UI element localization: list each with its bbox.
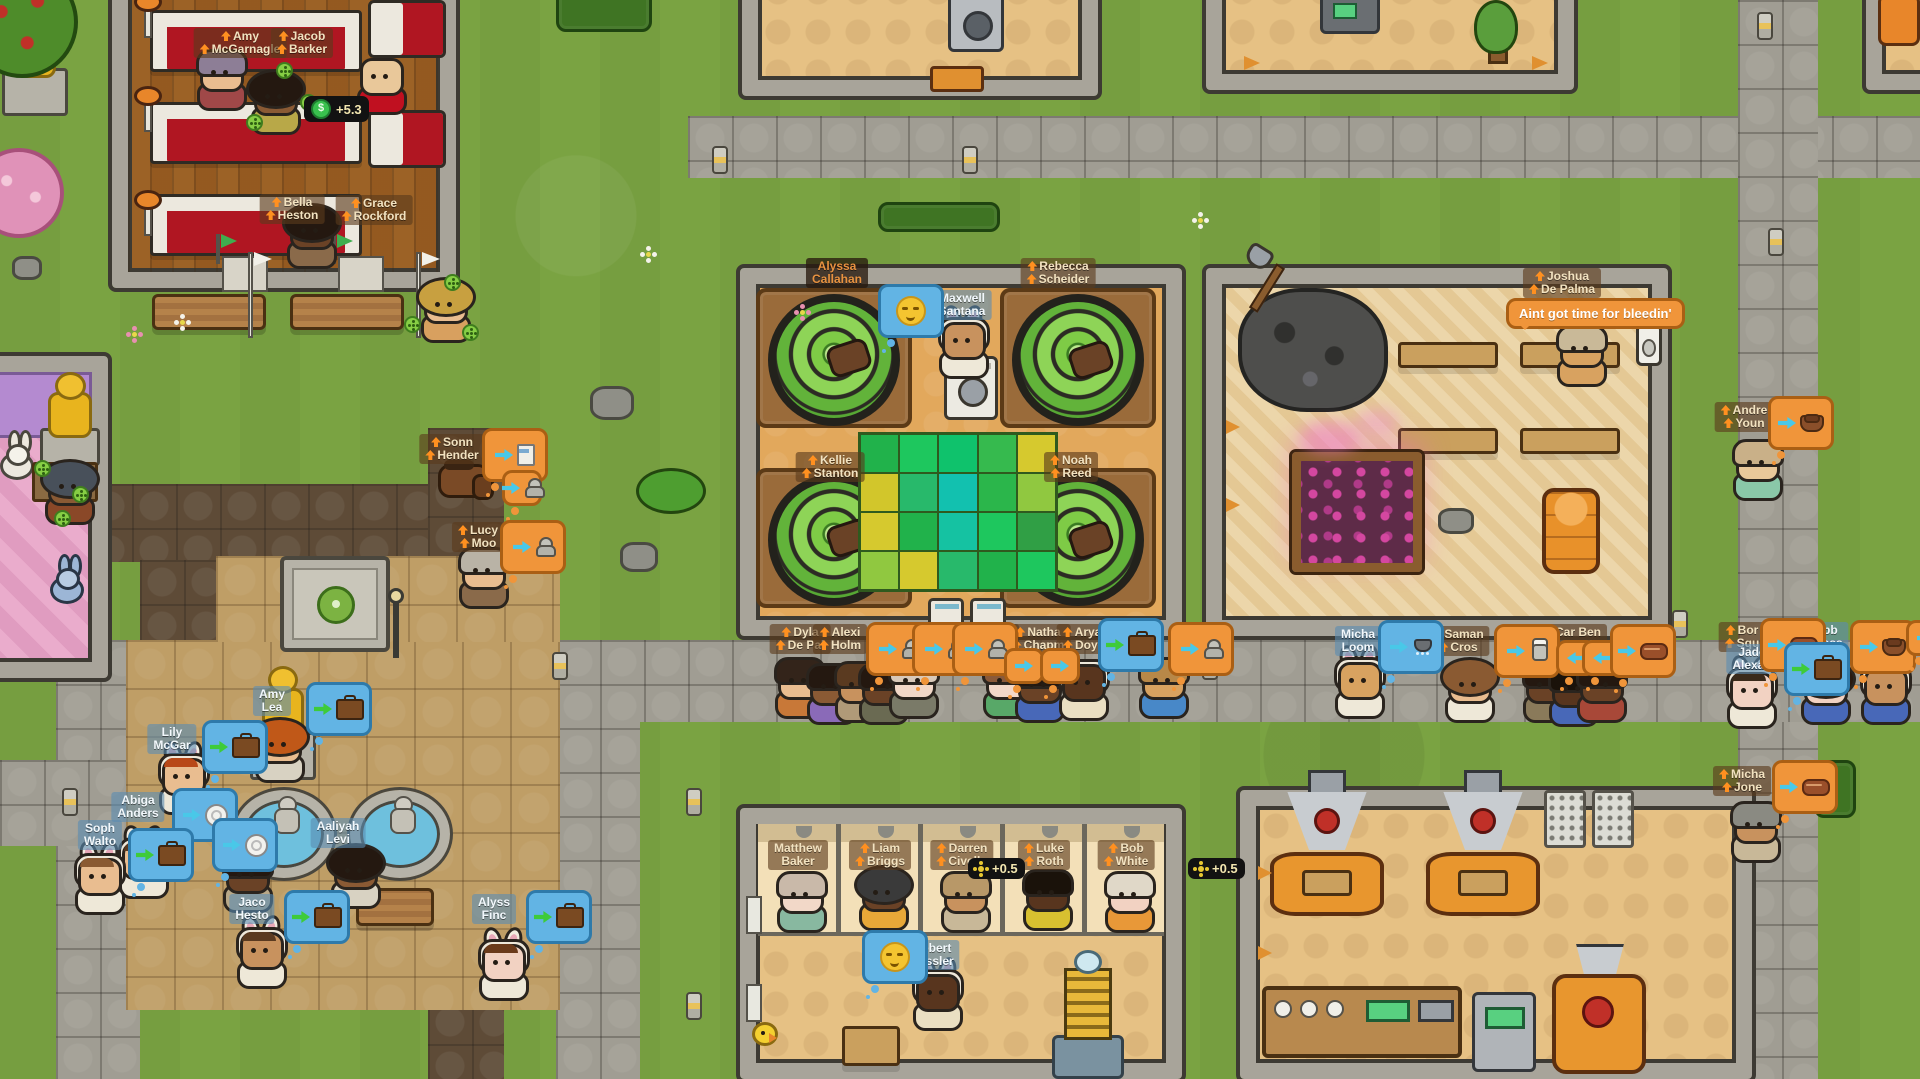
character-npc[interactable]: [420, 286, 466, 340]
up-arrow-icon: [1108, 843, 1118, 853]
character-eyes: [997, 678, 1002, 683]
plate-icon: [245, 834, 268, 857]
character-bob-white[interactable]: [1104, 876, 1150, 930]
bubble-tail: [221, 873, 229, 881]
name-banner-micha-loom: MichaLoom: [1335, 626, 1381, 656]
bubble-tail: [1519, 324, 1531, 336]
bubble-tail: [1781, 815, 1789, 823]
up-arrow-icon: [1050, 468, 1060, 478]
path-top-horizontal: [688, 116, 1920, 178]
up-arrow-icon: [1050, 455, 1060, 465]
assembly-counter[interactable]: [1262, 986, 1462, 1058]
character-eyes: [1741, 688, 1746, 693]
hedge: [556, 0, 652, 32]
up-arrow-icon: [1529, 284, 1539, 294]
bubble-tail: [1591, 677, 1599, 685]
pinwheel-icon: [978, 866, 984, 872]
up-arrow-icon: [1719, 769, 1729, 779]
tulip-lamp: [134, 0, 162, 38]
arrow-icon: [925, 643, 943, 655]
arrow-icon: [965, 643, 983, 655]
case-icon: [232, 737, 260, 758]
character-eyes: [59, 484, 64, 489]
bubble-tail: [211, 775, 219, 783]
white-flag-icon: [422, 252, 440, 266]
name-banner-liam-briggs: LiamBriggs: [849, 840, 911, 870]
dorm-bed[interactable]: [368, 0, 446, 58]
arrow-icon: [1593, 652, 1611, 664]
character-jade-alexan[interactable]: [1726, 672, 1772, 726]
arrow-icon: [1106, 639, 1124, 651]
meat-icon: [1802, 779, 1830, 796]
character-maxwell-santana[interactable]: [938, 322, 984, 376]
character-head: [360, 58, 404, 96]
thought-bubble-lucy-moo: [500, 520, 566, 574]
character-eyes: [953, 338, 958, 343]
thought-bubble-lily-mcgar: [202, 720, 268, 774]
thought-bubble-arya-doyl: [1040, 648, 1080, 684]
up-arrow-icon: [458, 525, 468, 535]
character-hair: [1440, 657, 1500, 697]
shower-icon: [1412, 637, 1432, 657]
up-arrow-icon: [1726, 625, 1736, 635]
character-hair: [854, 865, 914, 905]
arrow-icon: [1051, 660, 1069, 672]
badge-value: +5.3: [336, 102, 362, 117]
name-banner-joshua-de-palma: JoshuaDe Palma: [1523, 268, 1601, 298]
clover-sparkle-icon: [72, 486, 89, 503]
bubble-tail: [961, 677, 969, 685]
flower-pink-icon: [128, 328, 140, 340]
character-eyes: [903, 678, 908, 683]
character-eyes: [1037, 890, 1042, 895]
bubble-tail: [921, 677, 929, 685]
name-banner-amy-lea: AmyLea: [253, 686, 291, 716]
arrow-icon: [513, 541, 531, 553]
bubble-tail: [1793, 697, 1801, 705]
pink-mist: [1355, 408, 1399, 436]
character-eyes: [89, 874, 94, 879]
orange-flag-icon: [1226, 420, 1240, 434]
up-arrow-icon: [1721, 405, 1731, 415]
up-arrow-icon: [1104, 856, 1114, 866]
up-arrow-icon: [460, 538, 470, 548]
bubble-tail: [1503, 679, 1511, 687]
path-center-vertical: [556, 640, 640, 1079]
arrow-icon: [183, 809, 201, 821]
bubble-tail: [875, 677, 883, 685]
white-bunny-pet[interactable]: [0, 428, 34, 480]
character-lucy-moo[interactable]: [458, 552, 504, 606]
flagpole: [248, 252, 253, 338]
hair-fringe: [242, 932, 276, 941]
arrow-icon: [1507, 645, 1525, 657]
character-eyes: [849, 682, 854, 687]
laundry-drum[interactable]: [1012, 294, 1144, 426]
hopper-machine[interactable]: [1424, 770, 1542, 920]
character-jaco-hesto[interactable]: [236, 932, 282, 986]
path-middle-horizontal: [556, 640, 1920, 722]
bubble-tail: [1619, 679, 1627, 687]
name-banner-soph-walto: SophWalto: [78, 820, 122, 850]
character-eyes: [371, 74, 376, 79]
chick-pet[interactable]: [752, 1022, 778, 1046]
flower-white-icon: [176, 316, 188, 328]
green-flag-icon: [337, 234, 353, 248]
coin-icon: $: [311, 99, 331, 119]
up-arrow-icon: [200, 44, 210, 54]
up-arrow-icon: [1027, 261, 1037, 271]
character-joshua-de-palma[interactable]: [1556, 330, 1602, 384]
work-table[interactable]: [1520, 428, 1620, 454]
character-soph-walto[interactable]: [74, 858, 120, 912]
bubble-tail: [1777, 451, 1785, 459]
orange-flag-icon: [1258, 946, 1272, 960]
arrow-icon: [210, 741, 228, 753]
name-banner-noah-reed: NoahReed: [1044, 452, 1098, 482]
character-matthew-baker[interactable]: [776, 876, 822, 930]
thought-bubble-jade-alexan: [1784, 642, 1850, 696]
path-dirt-connector: [140, 560, 216, 642]
clover-sparkle-icon: [54, 510, 71, 527]
character-hair: [1022, 869, 1074, 897]
bubble-tail: [509, 575, 517, 583]
name-banner-bob-white: BobWhite: [1098, 840, 1155, 870]
arrow-icon: [879, 643, 897, 655]
thought-bubble-maxwell-santana: [878, 284, 944, 338]
thought-bubble-npc: [502, 470, 542, 506]
thought-bubble-alyss-finc: [526, 890, 592, 944]
clover-sparkle-icon: [444, 274, 461, 291]
thought-bubble-robert-kessler: [862, 930, 928, 984]
thought-bubble-emil-bibb: [1906, 620, 1920, 656]
mat-tile: [861, 474, 898, 511]
tesla-machine[interactable]: [1046, 958, 1130, 1079]
name-banner-matthew-baker: MatthewBaker: [768, 840, 828, 870]
spin-badge: +0.5: [1188, 858, 1245, 879]
name-banner-grace-rockford: GraceRockford: [336, 195, 413, 225]
side-table[interactable]: [842, 1026, 900, 1066]
mat-tile: [939, 513, 976, 550]
up-arrow-icon: [820, 627, 830, 637]
money-badge: $+5.3: [304, 96, 369, 122]
character-hair: [246, 69, 306, 109]
up-arrow-icon: [802, 468, 812, 478]
thought-bubble-npc: [1168, 622, 1234, 676]
up-arrow-icon: [431, 437, 441, 447]
clover-sparkle-icon: [246, 114, 263, 131]
character-head: [1338, 662, 1382, 700]
thought-bubble-amy-lea: [306, 682, 372, 736]
person-icon: [1203, 639, 1221, 659]
thought-bubble-npc: [1494, 624, 1560, 678]
character-hair: [1104, 871, 1156, 899]
up-arrow-icon: [266, 210, 276, 220]
hopper-machine[interactable]: [1268, 770, 1386, 920]
character-eyes: [251, 948, 256, 953]
bubble-tail: [1565, 677, 1573, 685]
character-hair: [326, 843, 386, 883]
up-arrow-icon: [425, 450, 435, 460]
blossom-tree: [0, 148, 64, 238]
up-arrow-icon: [277, 44, 287, 54]
bubble-tail: [1915, 657, 1920, 665]
rock: [590, 386, 634, 420]
character-emil-bibb[interactable]: [1860, 668, 1906, 722]
arrow-icon: [1390, 641, 1408, 653]
bubble-tail: [871, 985, 879, 993]
character-eyes: [1537, 682, 1542, 687]
clover-sparkle-icon: [462, 324, 479, 341]
character-liam-briggs[interactable]: [858, 874, 904, 928]
up-arrow-icon: [272, 197, 282, 207]
arrow-icon: [1780, 781, 1798, 793]
clover-sparkle-icon: [34, 460, 51, 477]
name-banner-luke-roth: LukeRoth: [1018, 840, 1070, 870]
arrow-icon: [502, 482, 520, 494]
up-arrow-icon: [351, 198, 361, 208]
speech-bubble-joshua-de-palma: Aint got time for bleedin': [1506, 298, 1685, 329]
name-banner-sonn-hender: SonnHender: [419, 434, 484, 464]
pinwheel-icon: [1198, 866, 1204, 872]
character-eyes: [493, 960, 498, 965]
path-bollard: [962, 146, 978, 174]
shelf-crate[interactable]: [930, 66, 984, 92]
name-banner-alexi-holm: AlexiHolm: [813, 624, 867, 654]
bubble-tail: [1177, 677, 1185, 685]
bubble-tail: [1107, 673, 1115, 681]
wall-poster: [746, 984, 762, 1022]
arrow-icon: [1778, 417, 1796, 429]
tulip-lamp: [134, 190, 162, 236]
character-luke-roth[interactable]: [1022, 874, 1068, 928]
character-eyes: [1875, 684, 1880, 689]
name-banner-rebecca-scheider: RebeccaScheider: [1021, 258, 1096, 288]
name-banner-bella-heston: BellaHeston: [260, 194, 325, 224]
bubble-tail: [1049, 685, 1057, 693]
orange-flag-icon: [1244, 56, 1260, 70]
bubble-tail: [535, 945, 543, 953]
up-arrow-icon: [808, 455, 818, 465]
smelter-machine[interactable]: [1548, 944, 1652, 1078]
mat-tile: [939, 552, 976, 589]
mat-tile: [861, 513, 898, 550]
arrow-icon: [223, 839, 241, 851]
dorm-bed[interactable]: [368, 110, 446, 168]
character-darren-civello[interactable]: [940, 876, 986, 930]
control-panel[interactable]: [1544, 790, 1586, 848]
topiary-plant[interactable]: [1474, 0, 1522, 66]
mat-tile: [861, 552, 898, 589]
up-arrow-icon: [1063, 627, 1073, 637]
character-eyes: [789, 678, 794, 683]
scanner-machine[interactable]: [1472, 992, 1536, 1072]
milk-icon: [517, 444, 535, 466]
character-eyes: [791, 892, 796, 897]
work-table[interactable]: [1398, 428, 1498, 454]
face-icon: [880, 942, 910, 972]
spin-badge: +0.5: [968, 858, 1025, 879]
character-eyes: [821, 684, 826, 689]
gold-statue[interactable]: [36, 372, 100, 464]
tulip-lamp: [134, 86, 162, 132]
bowl-icon: [1882, 639, 1906, 656]
bubble-text: Aint got time for bleedin': [1519, 306, 1672, 321]
thought-bubble-soph-walto: [128, 828, 194, 882]
bubble-tail: [1387, 675, 1395, 683]
character-alyss-finc[interactable]: [478, 944, 524, 998]
washer-machine[interactable]: [948, 0, 1004, 52]
play-mat: [858, 432, 1058, 592]
console-machine[interactable]: [1320, 0, 1380, 34]
case-icon: [556, 907, 584, 928]
orange-fountain[interactable]: [1878, 0, 1920, 46]
up-arrow-icon: [1535, 271, 1545, 281]
green-flag-icon: [221, 234, 237, 248]
work-table[interactable]: [1398, 342, 1498, 368]
hair-fringe: [484, 944, 518, 953]
up-arrow-icon: [776, 640, 786, 650]
hair-fringe: [80, 858, 114, 867]
arrow-icon: [1792, 663, 1810, 675]
character-eyes: [237, 872, 242, 877]
bubble-tail: [137, 883, 145, 891]
arrow-icon: [292, 911, 310, 923]
person-icon: [524, 478, 542, 498]
character-eyes: [345, 868, 350, 873]
mat-tile: [979, 474, 1016, 511]
name-banner-kellie-stanton: KellieStanton: [796, 452, 865, 482]
character-eyes: [173, 774, 178, 779]
up-arrow-icon: [221, 31, 231, 41]
character-eyes: [1571, 346, 1576, 351]
thought-bubble-npc: [212, 818, 278, 872]
up-arrow-icon: [1027, 274, 1037, 284]
character-head: [942, 322, 986, 360]
arrow-icon: [136, 849, 154, 861]
path-bollard: [686, 992, 702, 1020]
character-micha-loom[interactable]: [1334, 662, 1380, 716]
apple-tree: [0, 0, 78, 78]
thought-bubble-micha-jone: [1772, 760, 1838, 814]
mat-tile: [861, 435, 898, 472]
up-arrow-icon: [860, 843, 870, 853]
arrow-icon: [534, 911, 552, 923]
bubble-tail: [1859, 675, 1867, 683]
up-arrow-icon: [342, 211, 352, 221]
name-banner-andre-youn: AndreYoun: [1715, 402, 1774, 432]
path-bollard: [686, 788, 702, 816]
chapel-door[interactable]: [338, 256, 384, 292]
up-arrow-icon: [279, 31, 289, 41]
arrow-icon: [1015, 660, 1033, 672]
bubble-tail: [1769, 673, 1777, 681]
control-panel[interactable]: [1592, 790, 1634, 848]
character-eyes: [1349, 678, 1354, 683]
character-eyes: [873, 890, 878, 895]
character-eyes: [1563, 686, 1568, 691]
up-arrow-icon: [1723, 418, 1733, 428]
mat-tile: [900, 513, 937, 550]
mat-tile: [979, 513, 1016, 550]
character-eyes: [269, 742, 274, 747]
path-bollard: [62, 788, 78, 816]
character-eyes: [473, 568, 478, 573]
arrow-icon: [1181, 643, 1199, 655]
character-saman-cros[interactable]: [1444, 666, 1490, 720]
badge-value: +0.5: [1212, 861, 1238, 876]
outdoor-bench[interactable]: [290, 294, 404, 330]
name-banner-micha-jone: MichaJone: [1713, 766, 1771, 796]
mat-tile: [900, 474, 937, 511]
blue-bunny-pet[interactable]: [50, 552, 84, 604]
case-icon: [314, 907, 342, 928]
thought-bubble-npc: [1610, 624, 1676, 678]
character-hair: [1556, 325, 1608, 353]
arrow-icon: [314, 703, 332, 715]
thought-bubble-natha-chapm: [1004, 648, 1044, 684]
badge-value: +0.5: [992, 861, 1018, 876]
ore-crate[interactable]: [1292, 452, 1422, 572]
bubble-tail: [315, 737, 323, 745]
toilet[interactable]: [1636, 324, 1662, 366]
character-andre-youn[interactable]: [1732, 444, 1778, 498]
bubble-tail: [511, 507, 519, 515]
orange-flag-icon: [1258, 866, 1272, 880]
path-bollard: [712, 146, 728, 174]
up-arrow-icon: [1024, 856, 1034, 866]
case-icon: [336, 699, 364, 720]
person-icon: [987, 639, 1005, 659]
character-micha-jone[interactable]: [1730, 806, 1776, 860]
top-room-1: [742, 0, 1098, 96]
hedge: [878, 202, 1000, 232]
name-banner-jacob-barker: JacobBarker: [271, 28, 333, 58]
character-eyes: [301, 228, 306, 233]
name-banner-alyss-finc: AlyssFinc: [472, 894, 516, 924]
path-bollard: [1757, 12, 1773, 40]
character-hair: [776, 871, 828, 899]
white-flag-icon: [254, 252, 272, 266]
mat-tile: [900, 552, 937, 589]
monument[interactable]: [280, 556, 390, 652]
mat-tile: [979, 552, 1016, 589]
character-eyes: [1459, 682, 1464, 687]
character-eyes: [927, 990, 932, 995]
case-icon: [158, 845, 186, 866]
person-icon: [535, 537, 553, 557]
rock: [12, 256, 42, 280]
bubble-tail: [1013, 685, 1021, 693]
up-arrow-icon: [781, 627, 791, 637]
character-eyes: [1119, 892, 1124, 897]
clover-sparkle-icon: [404, 316, 421, 333]
bubble-tail: [293, 945, 301, 953]
hair-fringe: [164, 758, 198, 767]
case-icon: [1128, 635, 1156, 656]
character-amy-mcgarnagle[interactable]: [196, 54, 242, 108]
up-arrow-icon: [1722, 782, 1732, 792]
rock: [620, 542, 658, 572]
name-banner-alyssa-callahan: AlyssaCallahan: [806, 258, 868, 288]
mat-tile: [979, 435, 1016, 472]
barrel[interactable]: [1542, 488, 1600, 574]
mat-tile: [939, 474, 976, 511]
chef-icon: [1529, 641, 1547, 661]
character-eyes: [211, 70, 216, 75]
up-arrow-icon: [1024, 843, 1034, 853]
orange-flag-icon: [1532, 56, 1548, 70]
